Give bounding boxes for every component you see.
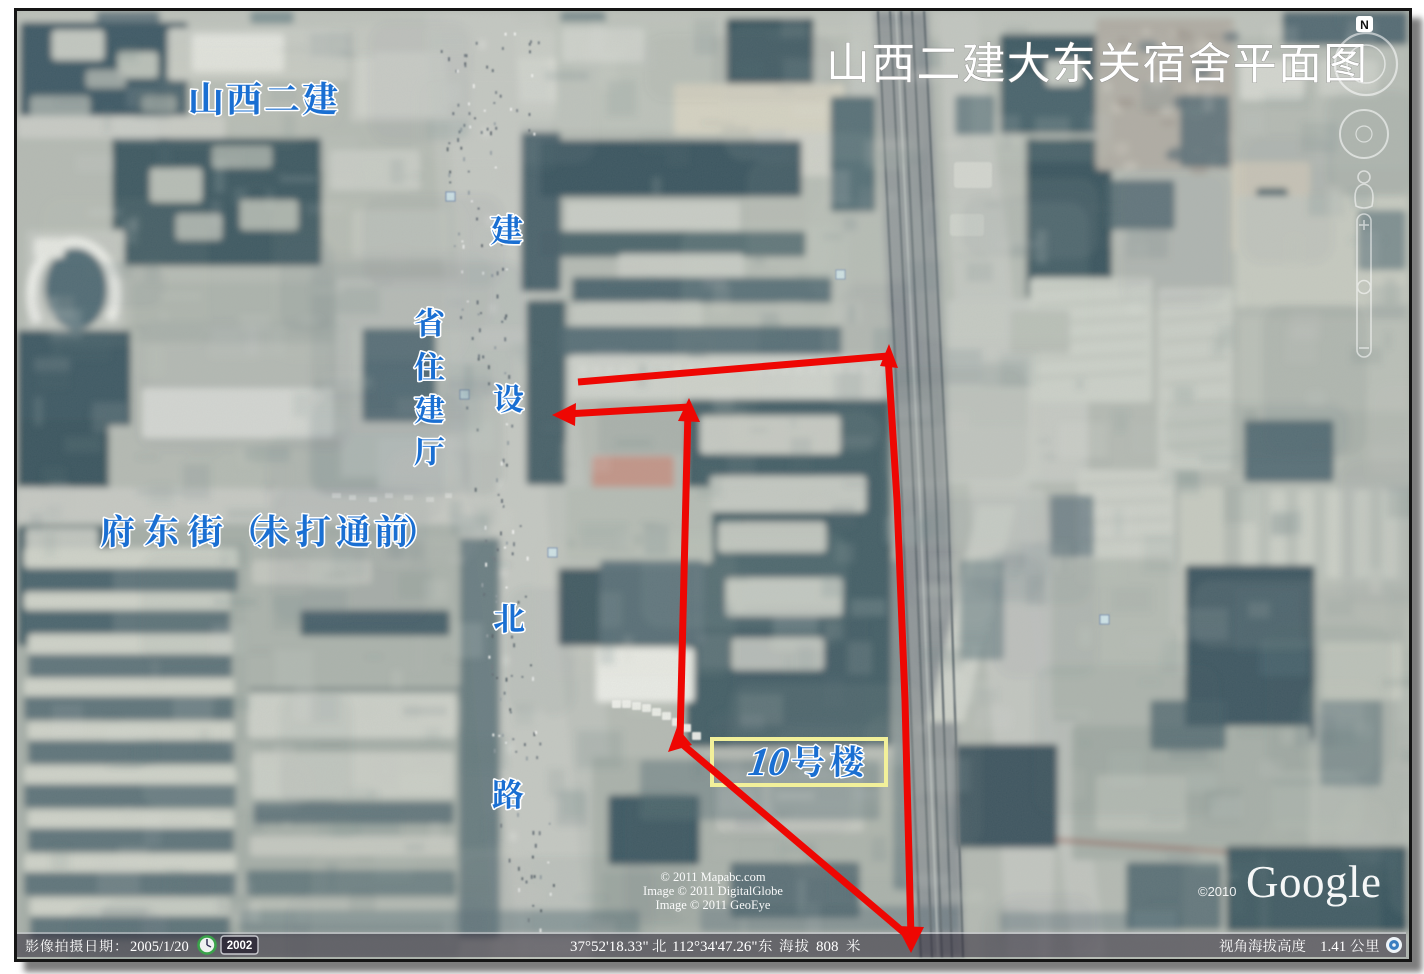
svg-text:1.41: 1.41	[1320, 939, 1346, 955]
svg-text:37°52'18.33": 37°52'18.33"	[570, 939, 649, 955]
svg-text:2005/1/20: 2005/1/20	[130, 939, 189, 955]
svg-text:Google: Google	[1246, 857, 1381, 907]
svg-text:Image © 2011 DigitalGlobe: Image © 2011 DigitalGlobe	[643, 884, 783, 898]
svg-text:2002: 2002	[227, 940, 253, 952]
svg-text:112°34'47.26": 112°34'47.26"	[672, 939, 758, 955]
svg-text:Image © 2011 GeoEye: Image © 2011 GeoEye	[656, 898, 771, 912]
svg-text:808: 808	[816, 939, 839, 955]
svg-text:10: 10	[746, 739, 792, 784]
svg-text:© 2011 Mapabc.com: © 2011 Mapabc.com	[660, 870, 765, 884]
svg-text:©2010: ©2010	[1198, 884, 1237, 899]
svg-text:N: N	[1360, 18, 1369, 32]
